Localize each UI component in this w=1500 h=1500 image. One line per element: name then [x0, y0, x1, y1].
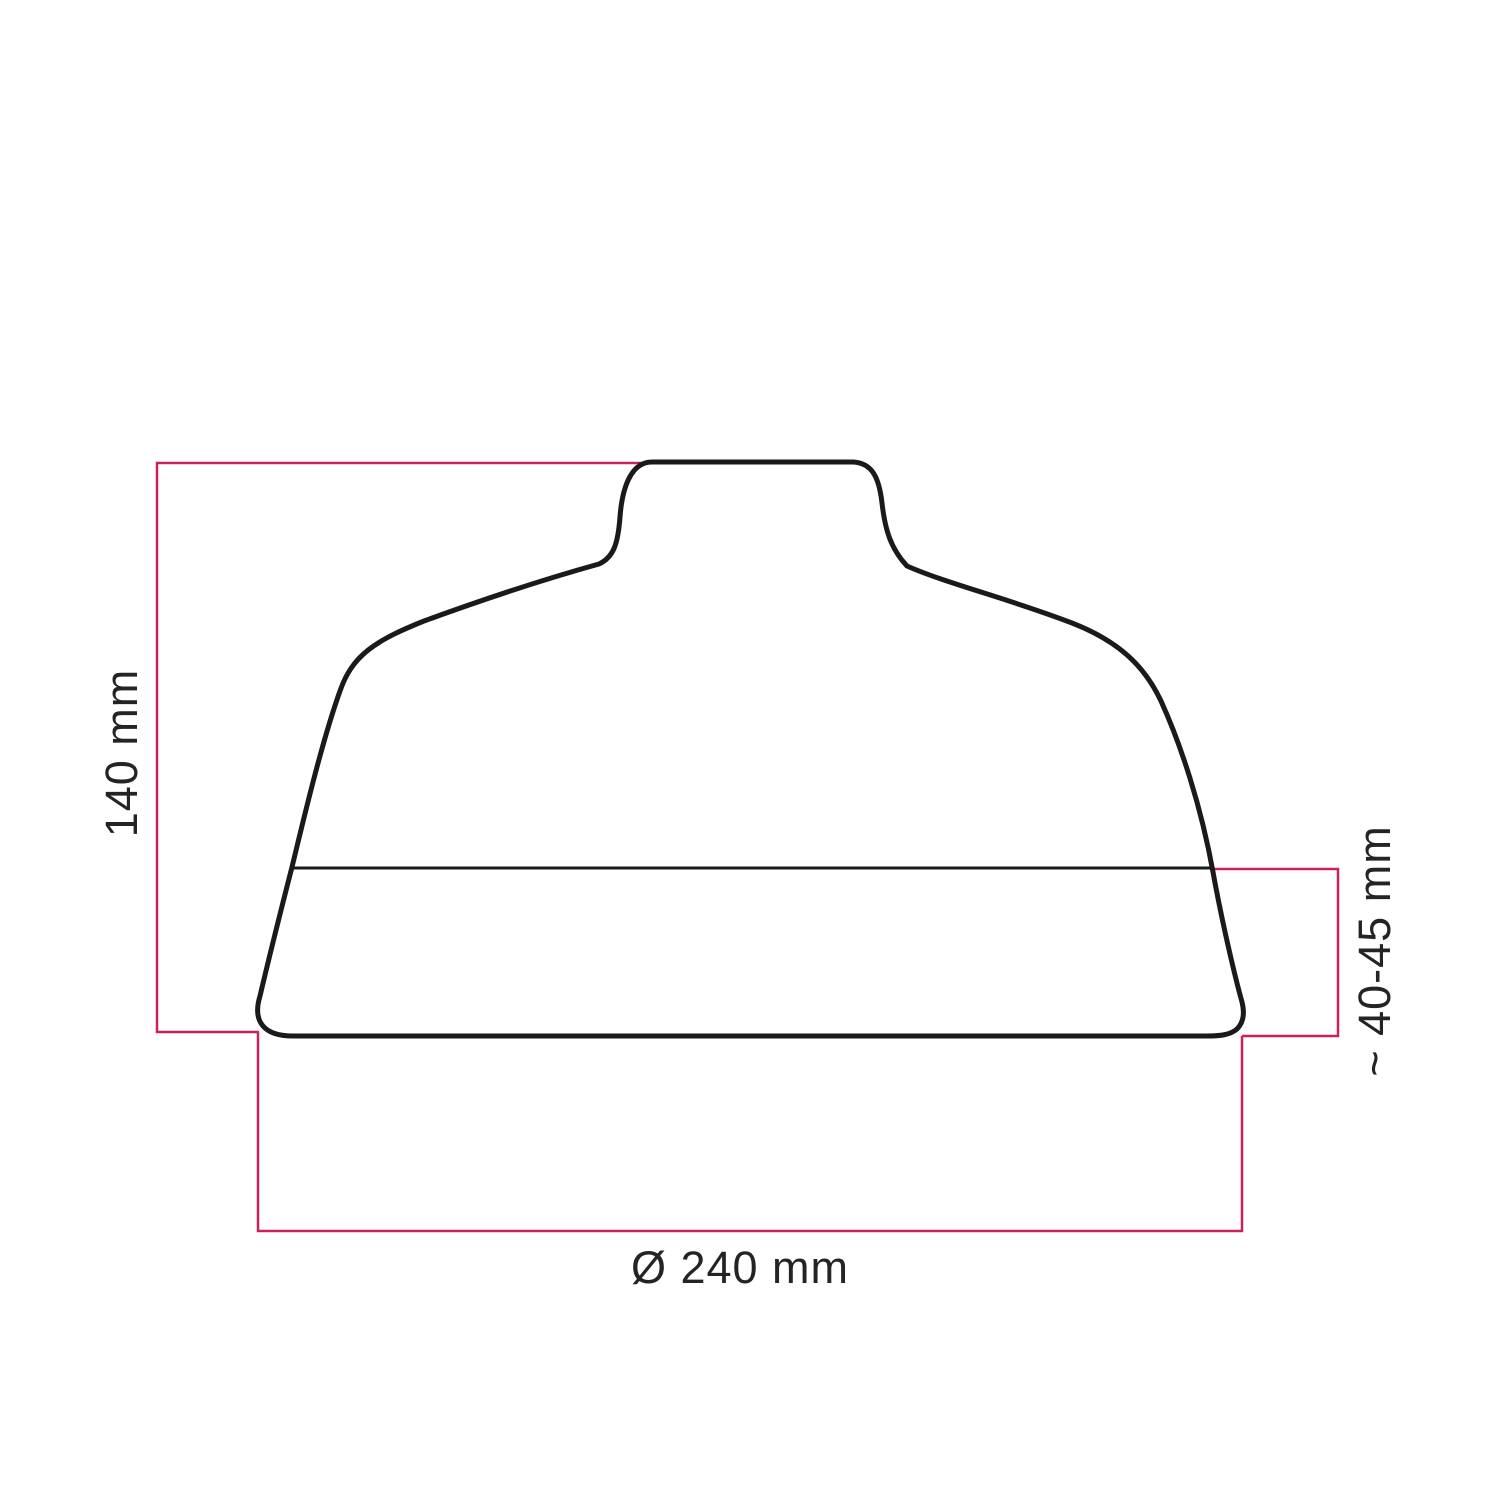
height-dimension-label: 140 mm: [96, 669, 147, 838]
lampshade-outline: [258, 462, 1244, 1036]
diagram-canvas: 140 mm ~ 40-45 mm Ø 240 mm: [0, 0, 1500, 1500]
lampshade-dimension-diagram: 140 mm ~ 40-45 mm Ø 240 mm: [0, 0, 1500, 1500]
diameter-dimension-line: [258, 1032, 1242, 1231]
band-height-dimension-label: ~ 40-45 mm: [1349, 825, 1400, 1076]
diameter-dimension-label: Ø 240 mm: [631, 1242, 849, 1293]
